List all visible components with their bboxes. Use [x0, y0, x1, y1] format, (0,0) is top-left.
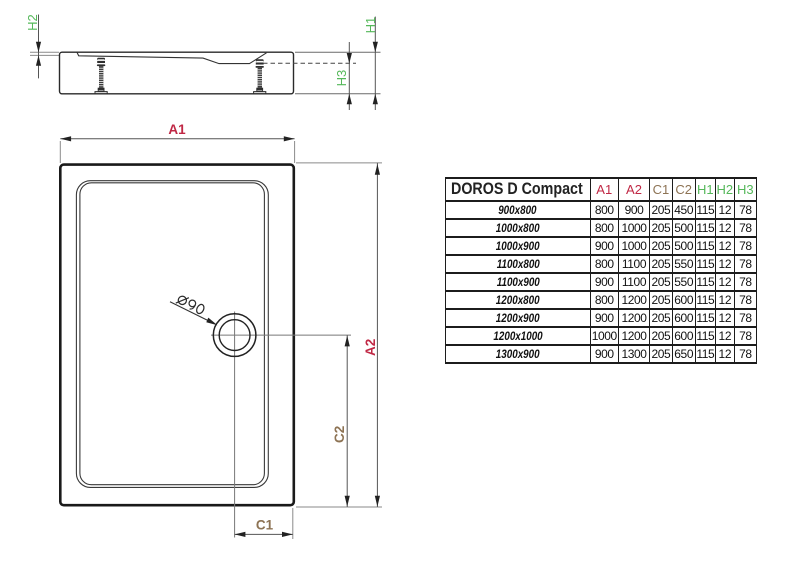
svg-text:C1: C1	[256, 518, 274, 533]
svg-text:A1: A1	[168, 122, 186, 137]
svg-text:H3: H3	[334, 70, 349, 87]
svg-text:H2: H2	[25, 14, 40, 31]
svg-text:C2: C2	[332, 426, 347, 443]
svg-text:A2: A2	[363, 339, 378, 356]
svg-text:H1: H1	[363, 17, 378, 34]
